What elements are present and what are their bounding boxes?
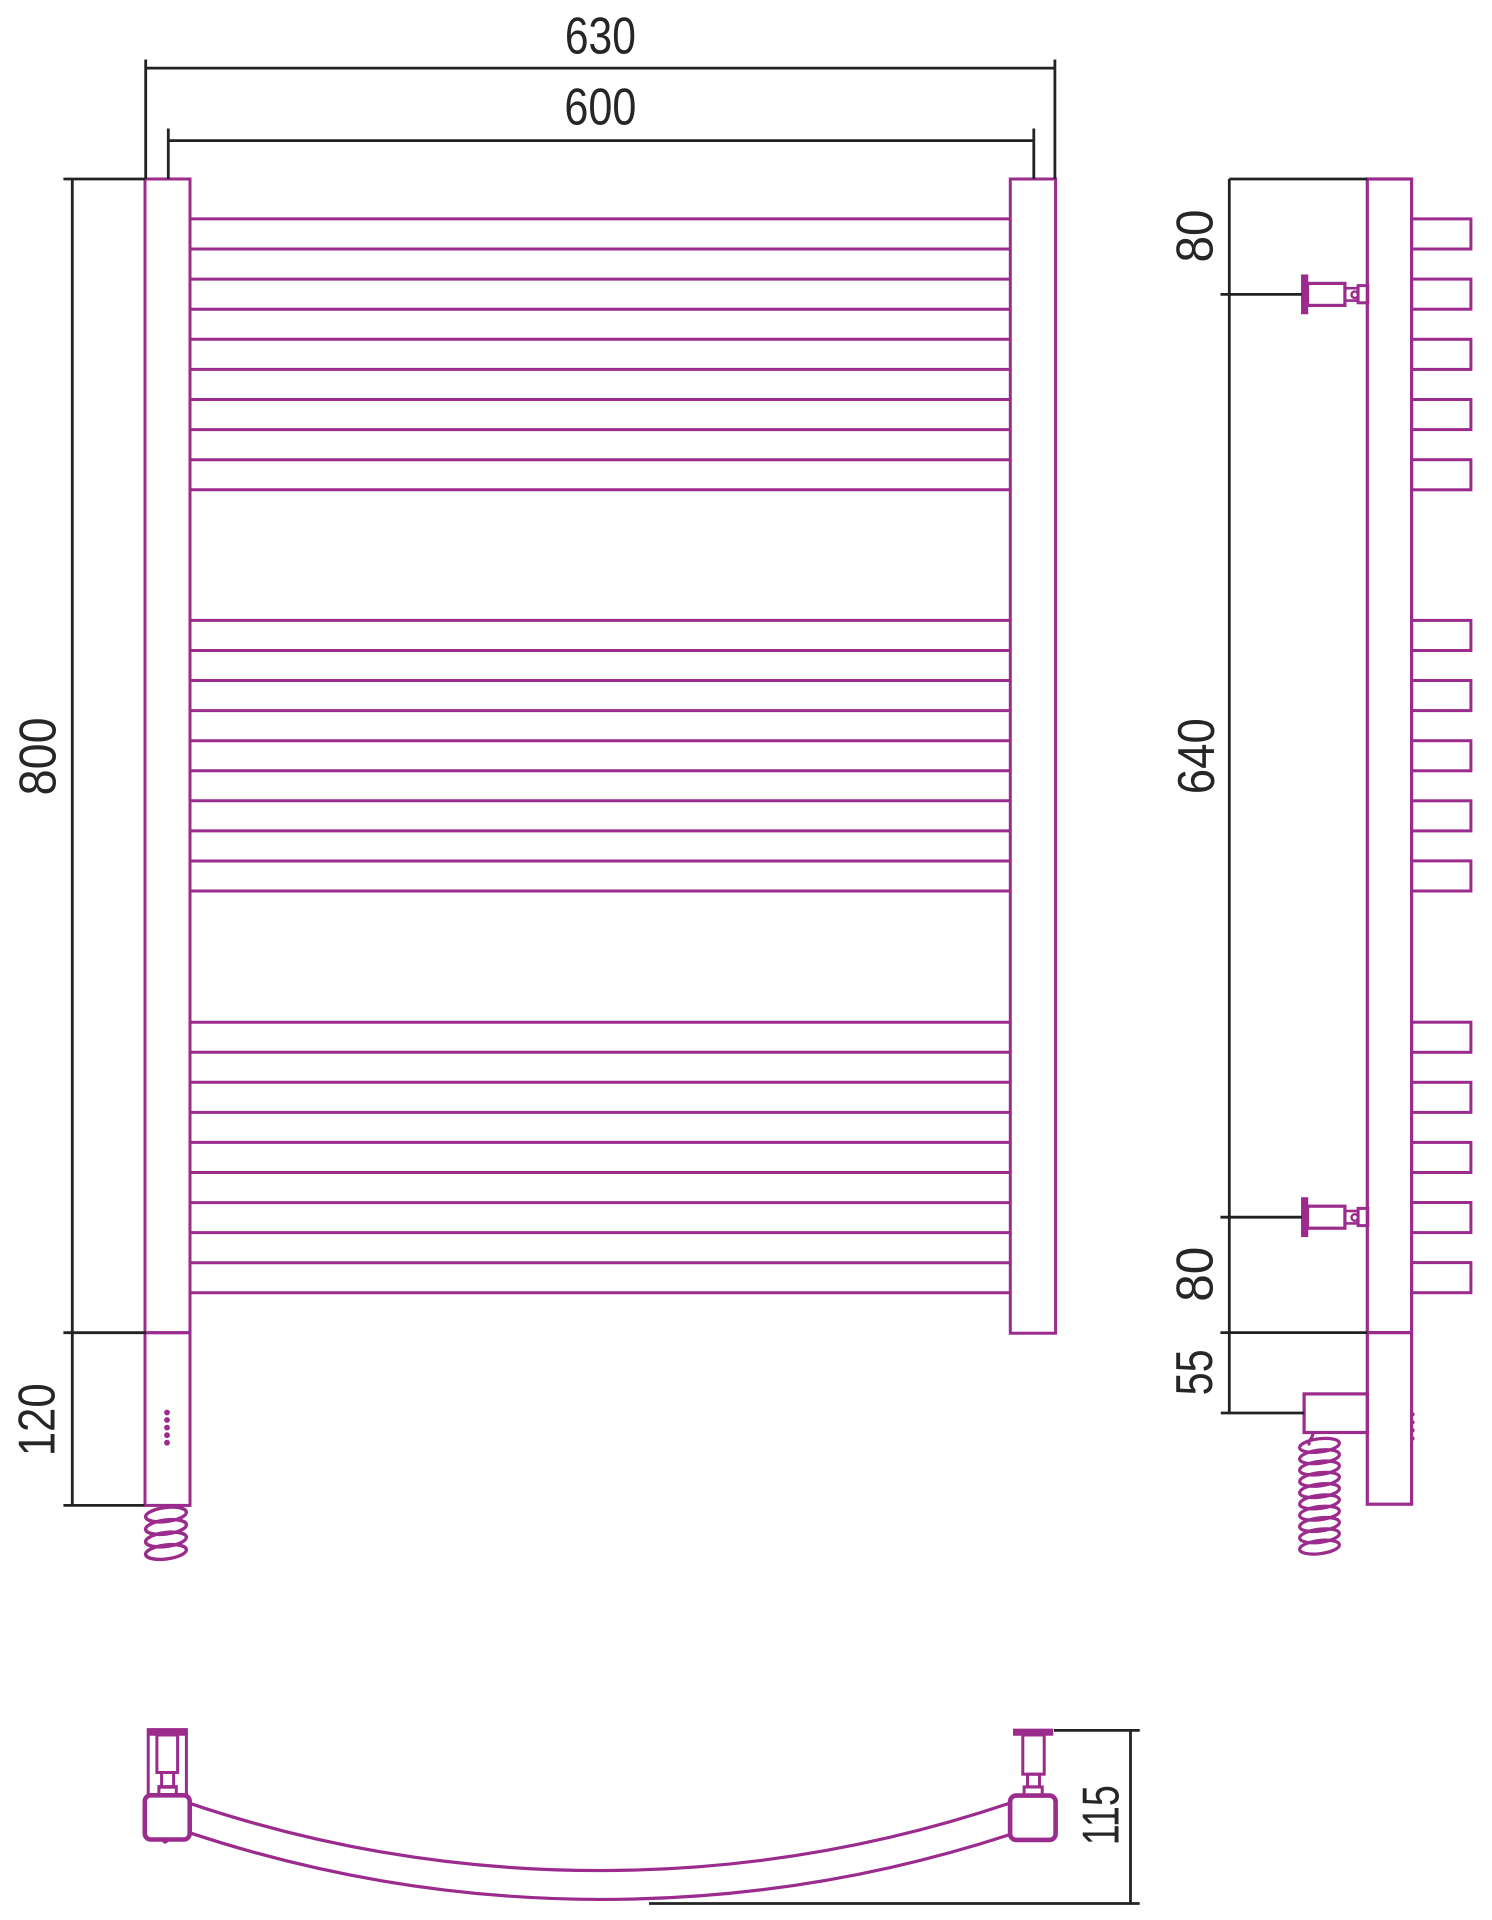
svg-text:630: 630 — [565, 8, 636, 66]
svg-text:640: 640 — [1168, 718, 1226, 794]
svg-text:600: 600 — [564, 79, 636, 137]
svg-text:80: 80 — [1167, 210, 1225, 263]
svg-text:80: 80 — [1166, 1247, 1224, 1302]
svg-text:800: 800 — [10, 717, 68, 795]
svg-text:115: 115 — [1072, 1785, 1130, 1845]
svg-text:55: 55 — [1166, 1349, 1224, 1395]
svg-text:120: 120 — [9, 1383, 67, 1456]
